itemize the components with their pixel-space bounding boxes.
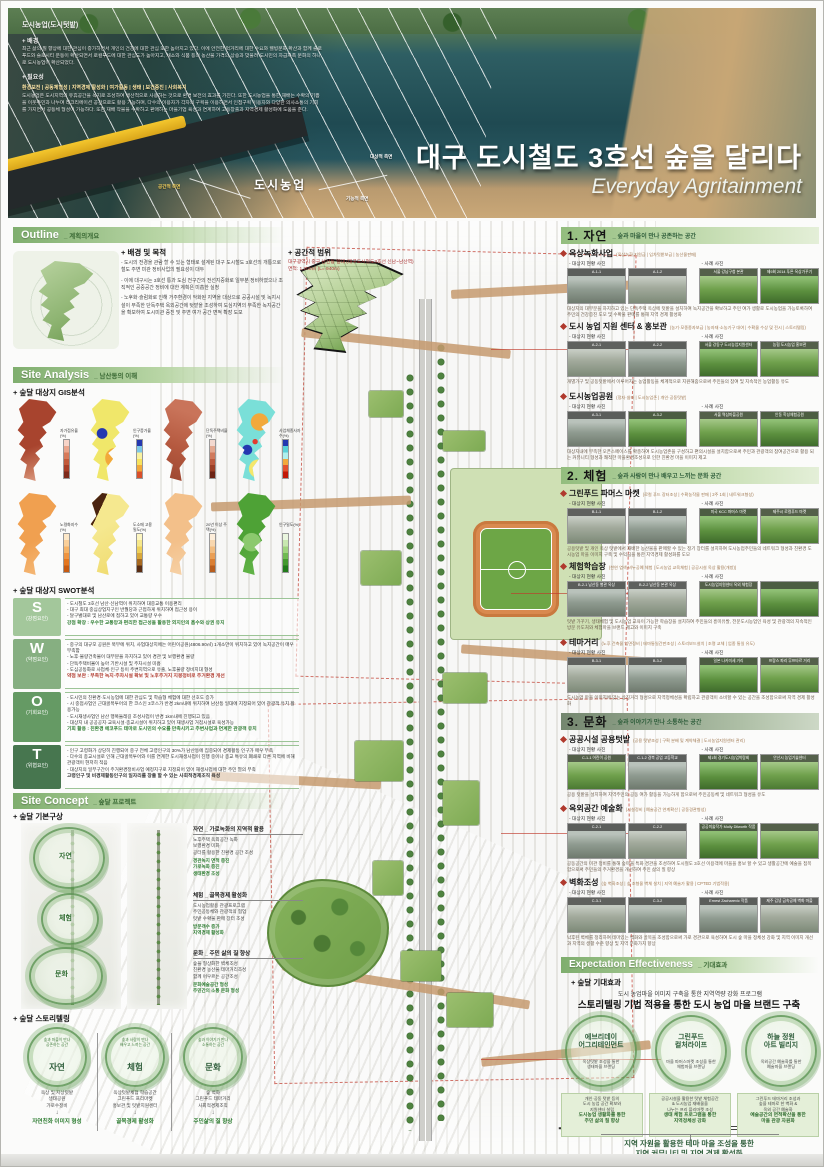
case-photos-label: - 사례 사진: [702, 573, 724, 580]
site-photo: A-1-1: [567, 268, 626, 304]
case-photo: Ernest Zacharevic 작품: [699, 897, 758, 933]
section-bar-nature: 1. 자연 _ 숲과 마을이 만나 공존하는 공간: [561, 227, 819, 244]
gis-map: 사업체종사자수(%): [232, 399, 301, 483]
photo-label: [761, 582, 818, 589]
photo-label: A-1-2: [629, 269, 686, 276]
program-item-learning-field: 체험학습장 (천연 염색·비누공예 체험 | 도시농업 교육체험 | 공공시설 …: [561, 561, 819, 631]
swot-strength-row: S (강점요인) - 도시철도 3호선 남산·신남역이 위치하여 대중교통 이용…: [13, 598, 299, 636]
story-name: 자연: [29, 1061, 85, 1073]
zone-label-culture: 문화: [55, 969, 68, 979]
storytelling-label: + 숲달 스토리텔링: [13, 1013, 70, 1024]
section-bar-outline: Outline _ 계획의개요: [13, 227, 285, 243]
box-bold: 생태 체험 프로그램을 통한 지역정체성 강화: [652, 1113, 728, 1125]
brand-sub: 마을 파머스마켓 조성을 통한 체험마을 브랜딩: [662, 1059, 720, 1070]
gis-map: 자가점유율(%): [13, 399, 82, 483]
case-photo: 제주 김녕 금속공예 벽화 마을: [760, 897, 819, 933]
diamond-bullet-icon: [560, 639, 567, 646]
swot-label: + 숲달 대상지 SWOT분석: [13, 585, 94, 596]
keywords-row: 환경보전 | 공동체형성 | 지역경제 활성화 | 여가활동 | 생태 | 보건…: [22, 84, 322, 91]
site-photo: A-3-1: [567, 411, 626, 447]
section-bar-site-concept: Site Concept _ 숲달 프로젝트: [13, 793, 285, 809]
photo-label: 안동 학성체험공원: [761, 412, 818, 419]
case-photo: 서울 역삼마을공원: [699, 411, 758, 447]
item-caption: 도시농업 마을 이미지에 맞는 상징거리 형성으로 지역정체성을 확립하고 관광…: [567, 695, 815, 707]
need-text: 도시농업은 도시지역의 유휴공간을 녹지로 조성하여 생산적으로 사용하는 것으…: [22, 94, 322, 115]
site-photo: C-2-1: [567, 823, 626, 859]
section-title: 1. 자연: [567, 227, 607, 244]
page-bottom-strip: [1, 1154, 823, 1166]
gis-map-row-1: 자가점유율(%) 인구증가율(%) 단독주택비율(%) 사업체종사자수(%): [13, 399, 301, 483]
case-photo: 농협 도시농업 홍보관: [760, 341, 819, 377]
brand-spiral: 하늘 정원 아트 빌리지 옥외공간 예술화를 통한 예술마을 브랜딩: [745, 1015, 817, 1087]
section-tagline: _ 숲과 마을이 만나 공존하는 공간: [612, 231, 695, 240]
site-photo: A-2-2: [628, 341, 687, 377]
site-photo: C-1-1 어린이 공원: [567, 754, 626, 790]
purpose-item: - 이에 대구시는 3호선 통과 도심 전구간의 전선지중화로 일부분 정비하였…: [121, 278, 283, 293]
diagram-right-label: 대상적 측면: [370, 154, 392, 160]
site-photos-label: - 대상지 현황 사진: [569, 260, 606, 267]
gis-legend: [209, 439, 216, 479]
brand-name: 하늘 정원 아트 빌리지: [747, 1034, 815, 1051]
item-caption: 낙후된 벽체를 정리하여 테마있는 벽화와 골목을 조성함으로써 가로 경관으로…: [567, 935, 815, 947]
gis-map-title: 노령화지수(%): [60, 523, 82, 532]
item-title: 그린푸드 파머스 마켓: [569, 488, 640, 499]
soccer-field: [473, 521, 559, 617]
case-photos-label: - 사례 사진: [702, 500, 724, 507]
swot-type: (약점요인): [13, 656, 61, 663]
photo-label: 미국 KCC 파머스 마켓: [700, 509, 757, 516]
gis-map-title: 20년 이상 주택(%): [206, 523, 228, 532]
story-result: 자연친화 이미지 형성: [21, 1117, 93, 1125]
case-photos-label: - 사례 사진: [702, 403, 724, 410]
section-title: 2. 체험: [567, 467, 607, 484]
diamond-bullet-icon: [560, 393, 567, 400]
photo-label: Ernest Zacharevic 작품: [700, 898, 757, 905]
story-tagline: 숲과 이야기가 만나 소통하는 공간: [189, 1038, 237, 1047]
scope-area: 대구광역시 중구 남산동 일대 (대구도시철도3호선 신남~남산역): [288, 260, 428, 267]
street-trees: [436, 341, 446, 1121]
photo-label: C-1-2 경북 공업 고등학교: [629, 755, 686, 762]
item-title: 테마거리: [569, 637, 598, 648]
green-parcel: [401, 951, 441, 981]
down-arrow-icon: ↓: [21, 1110, 93, 1116]
down-arrow-icon: ↓: [177, 1110, 249, 1116]
item-tags: (천연 염색·비누공예 체험 | 도시농업 교육체험 | 공공시설 옥상 활용(…: [609, 565, 737, 571]
photo-label: 서울 역삼마을공원: [700, 412, 757, 419]
program-item-farmers-market: 그린푸드 파머스 마켓 (로컬 푸드 장터조성 | 수확농작물 판매 | 2주 …: [561, 488, 819, 558]
photo-label: 제9회 2014 푸른 옥상가꾸기: [761, 269, 818, 276]
program-item-outdoor-art: 옥외공간 예술화 (시설정비 | 예술공간 연계확산 | 공동경관형성) - 대…: [561, 803, 819, 873]
section-bar-culture: 3. 문화 _ 숲과 이야기가 만나 소통하는 공간: [561, 713, 819, 730]
concept-block-title: 문화 _ 주민 삶의 질 향상: [193, 949, 303, 959]
diagram-center-label: 도시농업: [254, 176, 306, 193]
field-grass: [480, 528, 552, 610]
green-parcel: [443, 673, 487, 703]
swot-note: 기회 활용 : 친환경 에코푸드 테마로 도시민의 수요를 만족시키고 주변사업…: [67, 727, 297, 733]
swot-threat-body: - 인구 고령화가 상당히 진행되어 중구 전체 고령인구의 30%가 남산동에…: [65, 745, 299, 789]
gis-map: 도소매 고용밀도(%): [86, 493, 155, 577]
photo-label: 프랑스 파리 무프타르 거리: [761, 658, 818, 665]
case-photo: 공공미술작가 Molly Dilworth 작품: [699, 823, 758, 859]
section-bar-site-analysis: Site Analysis _ 남산동의 이해: [13, 367, 285, 383]
green-parcel: [447, 993, 493, 1027]
brand-sub: 옥상텃밭 조성을 통한 생태마을 브랜딩: [572, 1059, 630, 1070]
diagram-line: [189, 178, 250, 199]
item-caption: 대상지의 대부분을 차지하고 있는 단독주택 옥상에 텃밭을 설치하여 녹지공간…: [567, 306, 815, 318]
site-photos-label: - 대상지 현황 사진: [569, 649, 606, 656]
background-label: + 배경: [22, 36, 322, 45]
purpose-item: - 도시의 전경을 관람 할 수 있는 형태로 설계된 대구 도시철도 3호선의…: [121, 260, 283, 275]
site-photo: B-2-2 남산동 본관 옥상: [628, 581, 687, 617]
brand-name: 그린푸드 컬처라이프: [657, 1034, 725, 1051]
green-parcel: [373, 861, 403, 895]
site-photos-label: - 대상지 현황 사진: [569, 500, 606, 507]
section-tagline: _ 숲과 이야기가 만나 소통하는 공간: [612, 717, 701, 726]
story-result: 주민삶의 질 향상: [177, 1117, 249, 1125]
concept-block-items: 노후주택 옥외공간 녹화 보행환경 미화 공터를 활용한 친환경 공간 조성: [193, 837, 303, 856]
competition-panel: 도시농업(도시텃밭) + 배경 최근 삶의 질 향상에 대한 관심이 증가하면서…: [0, 0, 824, 1167]
expectation-label: + 숲달 기대효과: [571, 977, 621, 988]
item-caption: 텃밭 가꾸기, 생태체험 및 도시농업 교육이 가능한 학습장을 설치하여 주민…: [567, 619, 815, 631]
concept-label: + 숲달 기본구상: [13, 811, 63, 822]
case-photo: 서울 강동구 도시농업지원센터: [699, 341, 758, 377]
diagram-bottom-label: 기능적 측면: [346, 196, 368, 202]
concept-block-title: 자연 _ 가로녹화의 지역적 활용: [193, 825, 303, 835]
photo-label: A-1-1: [568, 269, 625, 276]
photo-label: A-3-1: [568, 412, 625, 419]
intro-title: 도시농업(도시텃밭): [22, 20, 322, 30]
gis-map: 인구증가율(%): [86, 399, 155, 483]
item-tags: (옥상녹화 지원금 | 임차텃밭보급 | 농산물판매): [616, 252, 696, 258]
gis-map: 인구밀도(%): [232, 493, 301, 577]
gis-legend: [282, 439, 289, 479]
item-tags: (노후 건축물 입면정비 | 테마통일간판조성 | 스토리보드설치 | 조명 교…: [601, 641, 754, 647]
site-photo: B-3-1: [567, 657, 626, 693]
case-photo: 제1회 경기도시농업박람회: [699, 754, 758, 790]
green-parcel: [369, 391, 403, 417]
program-item-farming-center: 도시 농업 지원 센터 & 홍보관 (농기·모종종자보급 | 농자재·소농기구 …: [561, 321, 819, 385]
connector-lines: [601, 1127, 779, 1135]
swot-strength-key: S (강점요인): [13, 598, 61, 636]
diamond-bullet-icon: [560, 879, 567, 886]
expectation-header: Expectation Effectiveness: [569, 959, 693, 970]
site-photo: B-1-1: [567, 508, 626, 544]
storytelling-divider: [171, 1033, 172, 1131]
swot-letter: T: [13, 747, 61, 762]
swot-weakness-key: W (약점요인): [13, 639, 61, 689]
culture-spiral: 숲과 이야기가 만나 소통하는 공간 문화: [183, 1027, 243, 1087]
green-parcel: [361, 551, 401, 585]
gis-map: 노령화지수(%): [13, 493, 82, 577]
item-caption: 대상지내에 부족한 오픈스페이스를 확충하여 도시농업존을 구성하고 편의시설을…: [567, 449, 815, 461]
diamond-bullet-icon: [560, 323, 567, 330]
scope-block: + 공간적 범위 대구광역시 중구 남산동 일대 (대구도시철도3호선 신남~남…: [288, 247, 428, 273]
diagram-left-label: 공간적 측면: [158, 184, 180, 190]
case-photo: 제9회 2014 푸른 옥상가꾸기: [760, 268, 819, 304]
concept-map-zones: 자연 체험 문화: [21, 823, 121, 1009]
concept-block-nature: 자연 _ 가로녹화의 지역적 활용 노후주택 옥외공간 녹화 보행환경 미화 공…: [193, 825, 303, 877]
analysis-header-sub: _ 남산동의 이해: [94, 370, 137, 380]
photo-label: B-3-2: [629, 658, 686, 665]
box-text: 그린푸드 테마거리 조성과 숲을 테마로 한 벽화 & 옥외 공간 예술화: [740, 1096, 816, 1112]
site-photo: C-2-2: [628, 823, 687, 859]
diamond-bullet-icon: [560, 250, 567, 257]
site-photos-label: - 대상지 현황 사진: [569, 333, 606, 340]
site-photo: B-3-2: [628, 657, 687, 693]
item-tags: (농기·모종종자보급 | 농자재·소농기구 대여 | 수확물 수상 및 전시 |…: [670, 325, 806, 331]
item-tags: (공용 텃밭조성 | 구획 분배 및 계약체결 | 도시농업지원센터 관리): [633, 738, 745, 744]
swot-bullets: - 인구 고령화가 상당히 진행되어 중구 전체 고령인구의 30%가 남산동에…: [67, 748, 297, 773]
swot-threat-key: T (위협요인): [13, 745, 61, 789]
gis-map: 20년 이상 주택(%): [159, 493, 228, 577]
swot-opportunity-key: O (기회요인): [13, 692, 61, 742]
photo-label: 공공미술작가 Molly Dilworth 작품: [700, 824, 757, 831]
site-photos-label: - 대상지 현황 사진: [569, 403, 606, 410]
swot-bullets: - 도시철도 3호선 남산·신남역이 위치하여 대중교통 이용편리 - 대구 최…: [67, 601, 297, 620]
gis-map-title: 자가점유율(%): [60, 429, 82, 438]
case-photo: [760, 581, 819, 617]
program-item-theme-street: 테마거리 (노후 건축물 입면정비 | 테마통일간판조성 | 스토리보드설치 |…: [561, 637, 819, 707]
case-photos-label: - 사례 사진: [702, 746, 724, 753]
swot-type: (위협요인): [13, 762, 61, 769]
swot-bullets: - 도시민의 친환경·도시농업에 대한 관심도 및 학습형 체험에 대한 선호도…: [67, 695, 297, 726]
scope-size: 면적: 1,200㎡ (L= 940m): [288, 267, 428, 274]
swot-weakness-body: - 중구의 대규모 공원은 북부에 위치, 사업대상지에는 어린이공원(4806…: [65, 639, 299, 689]
urban-farming-diagram: 도시농업 공간적 측면 대상적 측면 기능적 측면: [158, 158, 418, 210]
item-title: 도시농업공원: [569, 391, 613, 402]
case-photos-label: - 사례 사진: [702, 333, 724, 340]
story-tagline: 숲과 사람이 만나 배우고 느끼는 공간: [111, 1038, 159, 1047]
case-photo: 미국 KCC 파머스 마켓: [699, 508, 758, 544]
zone-label-experience: 체험: [59, 913, 72, 923]
photo-label: B-1-1: [568, 509, 625, 516]
gis-map-row-2: 노령화지수(%) 도소매 고용밀도(%) 20년 이상 주택(%) 인구밀도(%…: [13, 493, 301, 577]
gis-map-title: 단독주택비율(%): [206, 429, 228, 438]
photo-label: 제1회 경기도시농업박람회: [700, 755, 757, 762]
item-title: 공공시설 공용텃밭: [569, 734, 630, 745]
poster-title-english: Everyday Agritainment: [416, 175, 802, 199]
brand-circle-artvillage: 하늘 정원 아트 빌리지 옥외공간 예술화를 통한 예술마을 브랜딩: [739, 1015, 823, 1087]
site-photos-label: - 대상지 현황 사진: [569, 889, 606, 896]
swot-opportunity-row: O (기회요인) - 도시민의 친환경·도시농업에 대한 관심도 및 학습형 체…: [13, 692, 299, 742]
photo-label: 농협 도시농업 홍보관: [761, 342, 818, 349]
purpose-label: + 배경 및 목적: [121, 247, 283, 258]
box-text: 개인·공동 텃밭 등의 도시 농업 공간 확보와 지원센터 설립: [564, 1096, 640, 1112]
nature-spiral: 숲과 마을이 만나 공존하는 공간 자연: [27, 1027, 87, 1087]
site-photo: A-3-2: [628, 411, 687, 447]
concept-header-sub: _ 숲달 프로젝트: [93, 796, 136, 806]
swot-letter: O: [13, 694, 61, 709]
section-title: 3. 문화: [567, 713, 607, 730]
gis-legend: [209, 533, 216, 573]
zone-label-nature: 자연: [59, 851, 72, 861]
item-tags: (로컬 푸드 장터조성 | 수확농작물 판매 | 2주 1회 | 네트워크형성): [643, 492, 754, 498]
concept-block-culture: 문화 _ 주민 삶의 질 향상 숲을 형상화한 벽체조성 친환경 농산물 테마거…: [193, 949, 303, 995]
photo-label: 제주 김녕 금속공예 벽화 마을: [761, 898, 818, 905]
storytelling-divider: [97, 1033, 98, 1131]
program-item-public-garden: 공공시설 공용텃밭 (공용 텃밭조성 | 구획 분배 및 계약체결 | 도시농업…: [561, 734, 819, 798]
story-items: 옥상텃밭체험 학습공간 그린푸드 프리마켓 홍보관 및 텃밭지원센터: [99, 1090, 171, 1109]
experience-spiral: 숲과 사람이 만나 배우고 느끼는 공간 체험: [105, 1027, 165, 1087]
diamond-bullet-icon: [560, 805, 567, 812]
story-circle-culture: 숲과 이야기가 만나 소통하는 공간 문화 숲 벽화 그린푸드 테마거리 사회적…: [177, 1027, 249, 1125]
site-photo: A-2-1: [567, 341, 626, 377]
green-parcel: [355, 741, 403, 781]
item-title: 체험학습장: [569, 561, 606, 572]
section-bar-experience: 2. 체험 _ 숲과 사람이 만나 배우고 느끼는 문화 공간: [561, 467, 819, 484]
gis-legend: [63, 533, 70, 573]
box-bold: 예술공간의 면적확산을 통한 마을 관광 자원화: [740, 1113, 816, 1125]
item-tags: (시설정비 | 예술공간 연계확산 | 공동경관형성): [626, 807, 706, 813]
street-trees: [405, 371, 415, 1131]
case-photos-label: - 사례 사진: [702, 260, 724, 267]
swot-type: (강점요인): [13, 615, 61, 622]
concept-block-experience: 체험 _ 골목경제 활성화 도시농업활용 관광프로그램 주민공동체와 관광객의 …: [193, 891, 303, 937]
concept-block-items: 숲을 형상화한 벽체조성 친환경 농산물 테마거리조성 함께 어우르는 공간조성: [193, 961, 303, 980]
concept-block-items: 도시농업활용 관광프로그램 주민공동체와 관광객의 협업 텃밭 수확물 판매 장…: [193, 903, 303, 922]
story-tagline: 숲과 마을이 만나 공존하는 공간: [33, 1038, 81, 1047]
item-title: 벽화조성: [569, 877, 598, 888]
photo-label: 안산시 농업기술센터: [761, 755, 818, 762]
item-title: 도시 농업 지원 센터 & 홍보관: [569, 321, 667, 332]
site-photos-label: - 대상지 현황 사진: [569, 746, 606, 753]
gis-legend: [282, 533, 289, 573]
site-photo: C-3-1: [567, 897, 626, 933]
item-caption: 개별가구 및 공동텃밭에서 이루어지는 농업활동을 체계적으로 지원해줌으로써 …: [567, 379, 815, 385]
swot-note: 고령인구 및 비경제활동인구의 일자리를 창출 할 수 있는 사회적경제조직 육…: [67, 774, 297, 780]
photo-label: 서울 강남구청 본관: [700, 269, 757, 276]
photo-label: C-2-2: [629, 824, 686, 831]
story-items: 숲 벽화 그린푸드 테마거리 사회적경제조직: [177, 1090, 249, 1109]
green-parcel: [443, 781, 479, 825]
analysis-header: Site Analysis: [21, 369, 89, 381]
gis-legend: [136, 533, 143, 573]
brand-circle-agritainment: 에브리데이 어그리테인먼트 옥상텃밭 조성을 통한 생태마을 브랜딩: [559, 1015, 643, 1087]
need-label: + 필요성: [22, 72, 322, 81]
brand-name: 에브리데이 어그리테인먼트: [567, 1034, 635, 1051]
box-bold: 도시농업 생활화를 통한 주민 삶의 질 향상: [564, 1113, 640, 1125]
background-text: 최근 삶의 질 향상에 대한 관심이 증가하면서 개인의 건강에 대한 관심 또…: [22, 47, 322, 68]
swot-weakness-row: W (약점요인) - 중구의 대규모 공원은 북부에 위치, 사업대상지에는 어…: [13, 639, 299, 689]
photo-label: [761, 824, 818, 831]
case-photos-label: - 사례 사진: [702, 649, 724, 656]
gis-map-title: 사업체종사자수(%): [279, 429, 301, 438]
hero-photo: 도시농업(도시텃밭) + 배경 최근 삶의 질 향상에 대한 관심이 증가하면서…: [8, 8, 816, 218]
story-circle-experience: 숲과 사람이 만나 배우고 느끼는 공간 체험 옥상텃밭체험 학습공간 그린푸드…: [99, 1027, 171, 1125]
diamond-bullet-icon: [560, 490, 567, 497]
brand-circle-greenfood: 그린푸드 컬처라이프 마을 파머스마켓 조성을 통한 체험마을 브랜딩: [649, 1015, 733, 1087]
story-items: 옥상 및 지상텃밭 생태공원 가로수정비: [21, 1090, 93, 1109]
photo-label: A-2-1: [568, 342, 625, 349]
photo-label: B-2-2 남산동 본관 옥상: [629, 582, 686, 589]
story-name: 문화: [185, 1061, 241, 1073]
photo-label: C-2-1: [568, 824, 625, 831]
outline-header: Outline: [21, 229, 59, 241]
item-title: 옥외공간 예술화: [569, 803, 623, 814]
case-photo: 서울 강남구청 본관: [699, 268, 758, 304]
story-name: 체험: [107, 1061, 163, 1073]
gis-map-title: 도소매 고용밀도(%): [133, 523, 155, 532]
poster-title: 대구 도시철도 3호선 숲을 달리다 Everyday Agritainment: [416, 136, 802, 199]
swot-letter: S: [13, 600, 61, 615]
concept-block-result: 문화예술공간 형성 주민간의 소통 문화 형성: [193, 982, 303, 994]
corridor-axis: [157, 830, 160, 1005]
concept-block-result: 방문객수 증가 지역경제 활성화: [193, 924, 303, 936]
case-photos-label: - 사례 사진: [702, 889, 724, 896]
gis-legend: [63, 439, 70, 479]
photo-label: 일본 나카미세 거리: [700, 658, 757, 665]
program-item-mural: 벽화조성 (숲 벽화조성 | 숲 조형물 벽체 설치 | 지역 예술가 활용 |…: [561, 877, 819, 947]
case-photo: 제주시 로컬푸드 마켓: [760, 508, 819, 544]
diagram-line: [319, 175, 388, 191]
brand-spiral: 그린푸드 컬처라이프 마을 파머스마켓 조성을 통한 체험마을 브랜딩: [655, 1015, 727, 1087]
photo-label: 도시농업지원센터 옥외 체험장: [700, 582, 757, 589]
photo-label: C-3-1: [568, 898, 625, 905]
story-result: 골목경제 활성화: [99, 1117, 171, 1125]
brand-spiral: 에브리데이 어그리테인먼트 옥상텃밭 조성을 통한 생태마을 브랜딩: [565, 1015, 637, 1087]
site-photo: B-2-1 남산동 별관 옥상: [567, 581, 626, 617]
swot-threat-row: T (위협요인) - 인구 고령화가 상당히 진행되어 중구 전체 고령인구의 …: [13, 745, 299, 789]
item-caption: 공용 텃밭을 설치하여 지역주민의 공동 여가 활동을 가능하게 함으로써 주민…: [567, 792, 815, 798]
case-photo: 프랑스 파리 무프타르 거리: [760, 657, 819, 693]
item-caption: 공용텃밭 및 개인 옥상 텃밭에서 재배한 농산물을 판매할 수 있는 정기 장…: [567, 546, 815, 558]
item-tags: (정자·쉼터 | 도시농업존 | 개인·공동텃밭): [616, 395, 686, 401]
item-tags: (숲 벽화조성 | 숲 조형물 벽체 설치 | 지역 예술가 활용 | CPTE…: [601, 881, 729, 887]
photo-label: B-3-1: [568, 658, 625, 665]
site-photo: A-1-2: [628, 268, 687, 304]
program-item-rooftop-greening: 옥상녹화사업 (옥상녹화 지원금 | 임차텃밭보급 | 농산물판매) - 대상지…: [561, 248, 819, 318]
swot-opportunity-body: - 도시민의 친환경·도시농업에 대한 관심도 및 학습형 체험에 대한 선호도…: [65, 692, 299, 742]
swot-note: 강점 확장 : 우수한 교통망과 편리한 접근성을 활용한 외지인의 흡수와 상…: [67, 621, 297, 627]
brand-sub: 옥외공간 예술화를 통한 예술마을 브랜딩: [752, 1059, 810, 1070]
purpose-item: - 노후화·슬럼화로 인해 거주환경이 악화된 지역을 대상으로 공공시설 및 …: [121, 295, 283, 317]
diamond-bullet-icon: [560, 563, 567, 570]
case-photo: 일본 나카미세 거리: [699, 657, 758, 693]
swot-letter: W: [13, 641, 61, 656]
site-photos-label: - 대상지 현황 사진: [569, 573, 606, 580]
concept-header: Site Concept: [21, 795, 88, 807]
photo-label: 서울 강동구 도시농업지원센터: [700, 342, 757, 349]
concept-map-plan: [127, 823, 187, 1009]
gis-map-title: 인구증가율(%): [133, 429, 155, 438]
gis-map: 단독주택비율(%): [159, 399, 228, 483]
photo-label: A-3-2: [629, 412, 686, 419]
scope-label: + 공간적 범위: [288, 247, 428, 258]
swot-bullets: - 중구의 대규모 공원은 북부에 위치, 사업대상지에는 어린이공원(4806…: [67, 642, 297, 673]
photo-label: A-2-2: [629, 342, 686, 349]
jung-gu-district: [35, 261, 97, 341]
case-photo: [760, 823, 819, 859]
photo-label: B-1-2: [629, 509, 686, 516]
gis-legend: [136, 439, 143, 479]
swot-note: 약점 보완 : 부족한 녹지·주차시설 확보 및 노후주거지 지붕정비로 주거환…: [67, 674, 297, 680]
concept-block-result: 경관녹지 면적 증진 가로녹화 증진 생태환경 조성: [193, 858, 303, 877]
photo-label: B-2-1 남산동 별관 옥상: [568, 582, 625, 589]
gis-map-title: 인구밀도(%): [279, 523, 301, 528]
section-bar-expectation: Expectation Effectiveness _ 기대효과: [561, 957, 819, 973]
purpose-block: + 배경 및 목적 - 도시의 전경을 관람 할 수 있는 형태로 설계된 대구…: [121, 247, 283, 318]
case-photos-label: - 사례 사진: [702, 815, 724, 822]
program-item-farming-park: 도시농업공원 (정자·쉼터 | 도시농업존 | 개인·공동텃밭) - 대상지 현…: [561, 391, 819, 461]
item-caption: 공동공간의 미관 정비를 통해 숲마을 특화 경관을 조성하여 도시철도 3호선…: [567, 861, 815, 873]
outline-header-sub: _ 계획의개요: [64, 230, 99, 240]
site-photo: C-1-2 경북 공업 고등학교: [628, 754, 687, 790]
section-tagline: _ 숲과 사람이 만나 배우고 느끼는 문화 공간: [612, 471, 721, 480]
down-arrow-icon: ↓: [99, 1110, 171, 1116]
daegu-region-map: [13, 251, 119, 349]
site-photo: B-1-2: [628, 508, 687, 544]
photo-label: C-3-2: [629, 898, 686, 905]
